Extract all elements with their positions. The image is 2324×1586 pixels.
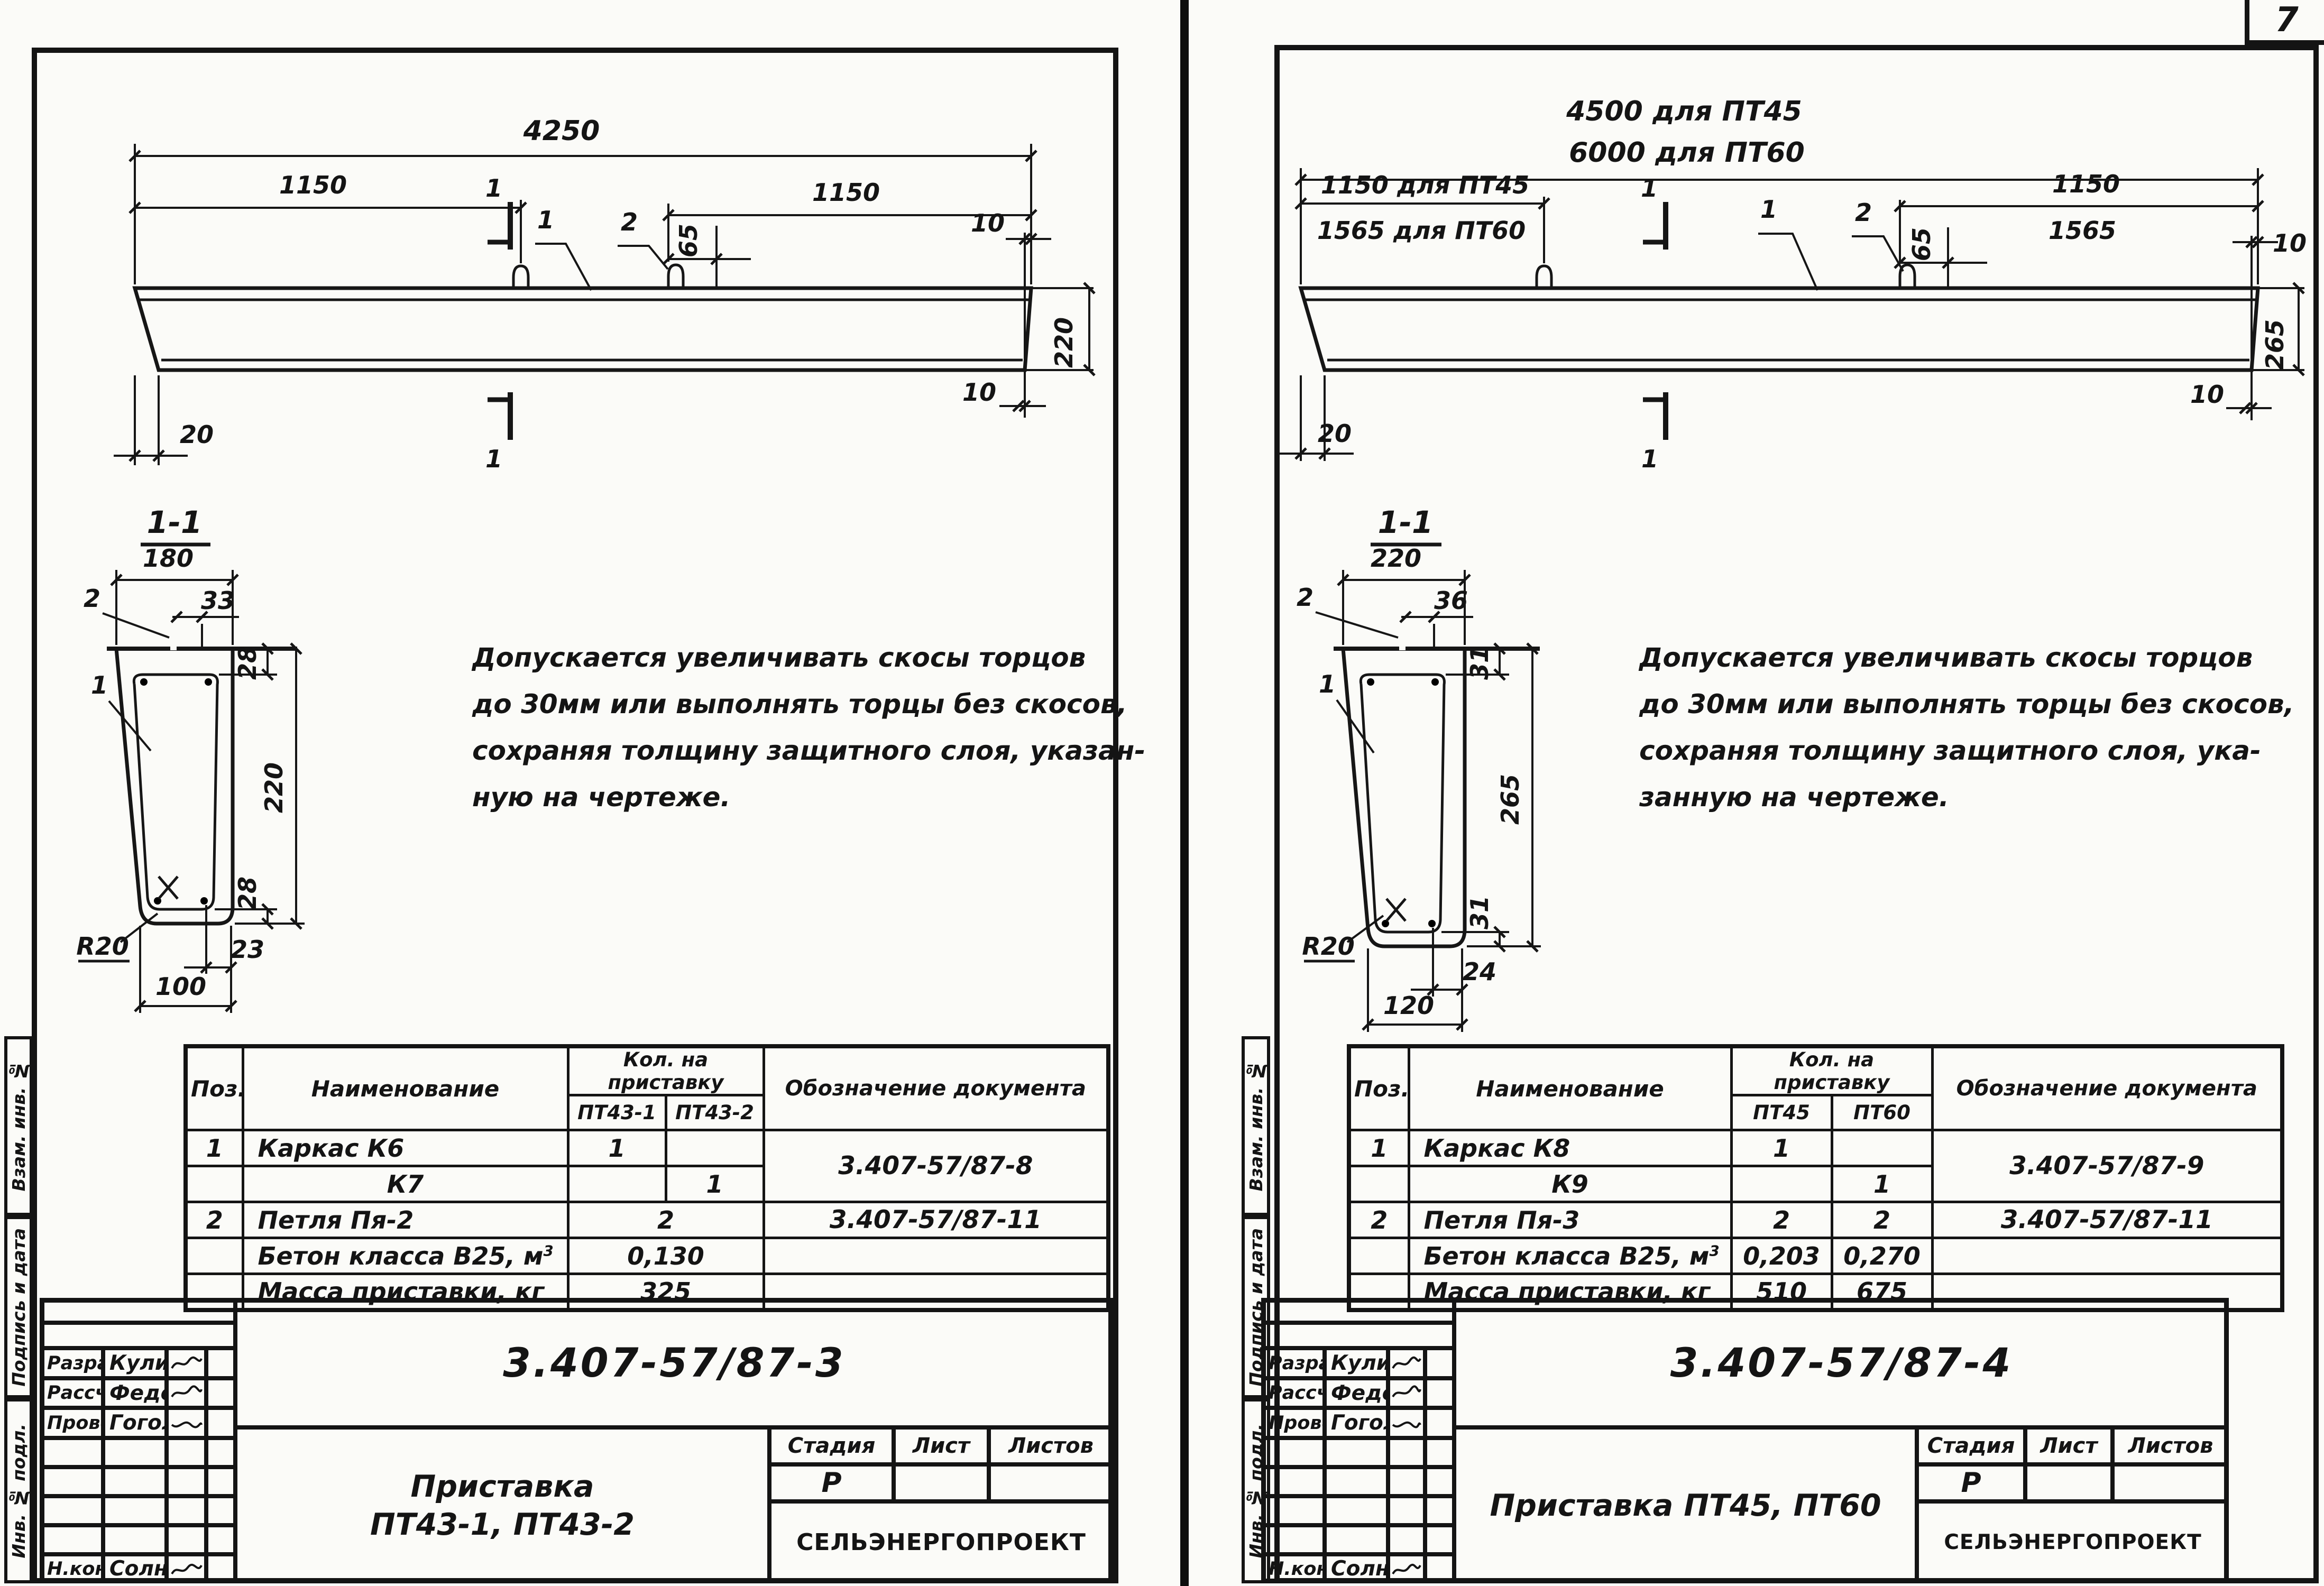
parts-table-right: Поз. Наименование Кол. на приставку Обоз… <box>1347 1044 2284 1312</box>
dim-top-width: 180 <box>143 544 194 573</box>
section-title: 1-1 <box>147 504 203 540</box>
note-line: до 30мм или выполнять торцы без скосов, <box>472 681 1145 727</box>
cell-qty: 1 <box>1731 1130 1832 1166</box>
dim-corner: 24 <box>1463 957 1496 986</box>
dim-pin: 33 <box>201 586 235 615</box>
note-line: ную на чертеже. <box>472 774 1145 820</box>
table-row: 1 Каркас К6 1 3.407-57/87-8 <box>186 1130 1108 1166</box>
title-block-border <box>1261 1298 2229 1583</box>
cell-name-text: Бетон класса В25, м <box>258 1242 544 1270</box>
dim-loop-offset: 65 <box>674 224 703 257</box>
strip-box: Взам. инв. № <box>1242 1036 1270 1216</box>
dim-beam-height: 265 <box>2261 319 2289 370</box>
col-header-qty: Кол. на приставку <box>1731 1046 1932 1095</box>
dim-left-loop: 1150 <box>279 171 347 199</box>
col-header-pos: Поз. <box>186 1046 243 1130</box>
cell-qty: 1 <box>568 1130 666 1166</box>
cell-qty <box>1832 1130 1932 1166</box>
col-header-doc: Обозначение документа <box>1932 1046 2282 1130</box>
note-line: до 30мм или выполнять торцы без скосов, <box>1639 681 2294 727</box>
cell-doc: 3.407-57/87-9 <box>1932 1130 2282 1202</box>
callout-cage: 1 <box>1319 670 1336 698</box>
dim-bottom-width: 120 <box>1383 991 1434 1020</box>
dim-end-top: 10 <box>971 209 1005 237</box>
dim-pin: 36 <box>1434 586 1468 615</box>
note-line: Допускается увеличивать скосы торцов <box>1639 634 2294 681</box>
note-line: сохраняя толщину защитного слоя, указан- <box>472 727 1145 774</box>
section-mark-top-label: 1 <box>485 174 502 202</box>
cell-qty: 2 <box>1731 1202 1832 1238</box>
dim-bevel: 20 <box>180 420 214 449</box>
cell-name-sup: 3 <box>1710 1242 1720 1259</box>
table-row: Бетон класса В25, м3 0,203 0,270 <box>1349 1238 2282 1274</box>
left-section-view: 1-1 180 33 28 220 28 23 100 R20 2 1 <box>76 504 305 1013</box>
strip-label: Взам. инв. № <box>8 1061 29 1191</box>
strip-box: Подпись и дата <box>1242 1216 1270 1398</box>
cell-pos: 1 <box>186 1130 243 1166</box>
cell-pos <box>1349 1238 1409 1274</box>
note-right: Допускается увеличивать скосы торцов до … <box>1639 634 2294 820</box>
cell-qty <box>1731 1166 1832 1202</box>
cell-doc: 3.407-57/87-11 <box>764 1202 1108 1238</box>
dim-total: 4250 <box>523 115 600 147</box>
dim-cover-top: 31 <box>1465 646 1494 680</box>
title-block-right: Разраб. Куликова Рассчит. Федотова Прове… <box>1261 1298 2229 1583</box>
right-beam-side-view: 4500 для ПТ45 6000 для ПТ60 1150 для ПТ4… <box>1280 96 2307 473</box>
dim-right-pt45: 1150 <box>2052 170 2120 198</box>
callout-loop: 2 <box>621 208 638 236</box>
right-section-view: 1-1 220 36 31 265 31 24 120 R20 2 1 <box>1297 504 1541 1032</box>
cell-doc: 3.407-57/87-8 <box>764 1130 1108 1202</box>
callout-body: 1 <box>537 206 554 234</box>
cell-name: Каркас К6 <box>243 1130 568 1166</box>
dim-cover-top: 28 <box>233 646 262 680</box>
cell-pos <box>186 1238 243 1274</box>
callout-body: 1 <box>1760 195 1777 224</box>
note-line: сохраняя толщину защитного слоя, ука- <box>1639 727 2294 774</box>
cell-qty: 0,130 <box>568 1238 764 1274</box>
dim-left-pt45: 1150 для ПТ45 <box>1321 171 1529 199</box>
table-row: 2 Петля Пя-3 2 2 3.407-57/87-11 <box>1349 1202 2282 1238</box>
col-header-pt43-1: ПТ43-1 <box>568 1095 666 1130</box>
cell-pos <box>186 1166 243 1202</box>
cell-name: Бетон класса В25, м3 <box>1409 1238 1731 1274</box>
strip-box: Инв. № подл. <box>1242 1398 1270 1583</box>
col-header-qty: Кол. на приставку <box>568 1046 764 1095</box>
cell-name: Бетон класса В25, м3 <box>243 1238 568 1274</box>
col-header-pos: Поз. <box>1349 1046 1409 1130</box>
cell-doc <box>764 1238 1108 1274</box>
strip-label: Подпись и дата <box>8 1228 29 1387</box>
dim-end-bottom: 10 <box>2190 380 2224 409</box>
cell-qty: 0,270 <box>1832 1238 1932 1274</box>
cell-name-sup: 3 <box>544 1242 554 1259</box>
cell-qty: 1 <box>666 1166 764 1202</box>
dim-bevel: 20 <box>1318 419 1352 448</box>
cell-qty: 2 <box>1832 1202 1932 1238</box>
parts-table-left: Поз. Наименование Кол. на приставку Обоз… <box>183 1044 1110 1312</box>
strip-box: Подпись и дата <box>4 1216 33 1398</box>
strip-label: Взам. инв. № <box>1246 1061 1266 1191</box>
cell-qty: 2 <box>568 1202 764 1238</box>
strip-label: Инв. № подл. <box>1246 1424 1266 1559</box>
cell-doc <box>1932 1238 2282 1274</box>
section-mark-bottom-label: 1 <box>485 445 502 473</box>
dim-cover-bottom: 28 <box>233 877 262 910</box>
cell-name: Каркас К8 <box>1409 1130 1731 1166</box>
dim-bottom-width: 100 <box>155 972 206 1001</box>
table-row: 2 Петля Пя-2 2 3.407-57/87-11 <box>186 1202 1108 1238</box>
cell-pos <box>1349 1166 1409 1202</box>
callout-loop: 2 <box>1855 198 1872 227</box>
dim-right-pt60: 1565 <box>2049 216 2116 245</box>
dim-end-top: 10 <box>2273 229 2307 257</box>
cell-name: Петля Пя-3 <box>1409 1202 1731 1238</box>
title-block-border <box>40 1298 1113 1583</box>
section-mark-bottom-label: 1 <box>1641 445 1658 473</box>
note-left: Допускается увеличивать скосы торцов до … <box>472 634 1145 820</box>
dim-loop-offset: 65 <box>1907 227 1936 261</box>
col-header-doc: Обозначение документа <box>764 1046 1108 1130</box>
title-block-left: Разраб. Куликова Рассчит. Федотова Прове… <box>40 1298 1113 1583</box>
dim-total-pt45: 4500 для ПТ45 <box>1566 96 1802 127</box>
section-title: 1-1 <box>1378 504 1434 540</box>
strip-label: Инв. № подл. <box>8 1424 29 1559</box>
table-row: Бетон класса В25, м3 0,130 <box>186 1238 1108 1274</box>
col-header-name: Наименование <box>243 1046 568 1130</box>
cell-pos: 1 <box>1349 1130 1409 1166</box>
dim-left-pt60: 1565 для ПТ60 <box>1317 216 1526 245</box>
strip-label: Подпись и дата <box>1246 1228 1266 1387</box>
section-mark-top-label: 1 <box>1641 174 1658 202</box>
dim-right-loop: 1150 <box>812 178 880 207</box>
strip-box: Инв. № подл. <box>4 1398 33 1583</box>
scanned-drawing-page: { "page_number": "7", "left": { "side_la… <box>0 0 2324 1586</box>
cell-pos: 2 <box>1349 1202 1409 1238</box>
note-line: занную на чертеже. <box>1639 774 2294 820</box>
callout-cage: 1 <box>91 671 108 699</box>
cell-qty: 1 <box>1832 1166 1932 1202</box>
cell-qty: 0,203 <box>1731 1238 1832 1274</box>
cell-name: Петля Пя-2 <box>243 1202 568 1238</box>
col-header-name: Наименование <box>1409 1046 1731 1130</box>
table-row: 1 Каркас К8 1 3.407-57/87-9 <box>1349 1130 2282 1166</box>
callout-pin: 2 <box>1297 583 1313 612</box>
note-line: Допускается увеличивать скосы торцов <box>472 634 1145 681</box>
dim-beam-height: 220 <box>1050 317 1078 368</box>
dim-cover-bottom: 31 <box>1465 896 1494 929</box>
cell-qty <box>568 1166 666 1202</box>
cell-doc: 3.407-57/87-11 <box>1932 1202 2282 1238</box>
strip-box: Взам. инв. № <box>4 1036 33 1216</box>
side-strip-right: Взам. инв. № Подпись и дата Инв. № подл. <box>1242 1036 1270 1583</box>
col-header-pt60: ПТ60 <box>1832 1095 1932 1130</box>
cell-name-text: Бетон класса В25, м <box>1424 1242 1710 1270</box>
col-header-pt43-2: ПТ43-2 <box>666 1095 764 1130</box>
radius-label: R20 <box>1302 932 1354 961</box>
dim-end-bottom: 10 <box>962 378 996 407</box>
side-strip-left: Взам. инв. № Подпись и дата Инв. № подл. <box>4 1036 33 1583</box>
cell-name: К9 <box>1409 1166 1731 1202</box>
cell-pos: 2 <box>186 1202 243 1238</box>
dim-corner: 23 <box>231 935 264 964</box>
dim-section-height: 220 <box>260 762 288 813</box>
left-beam-side-view: 4250 1150 1150 65 10 220 10 20 1 1 1 2 <box>114 115 1094 473</box>
dim-top-width: 220 <box>1371 544 1421 573</box>
radius-label: R20 <box>76 932 128 961</box>
dim-section-height: 265 <box>1496 774 1524 825</box>
col-header-pt45: ПТ45 <box>1731 1095 1832 1130</box>
callout-pin: 2 <box>84 584 100 613</box>
cell-name: К7 <box>243 1166 568 1202</box>
cell-qty <box>666 1130 764 1166</box>
dim-total-pt60: 6000 для ПТ60 <box>1569 137 1805 169</box>
